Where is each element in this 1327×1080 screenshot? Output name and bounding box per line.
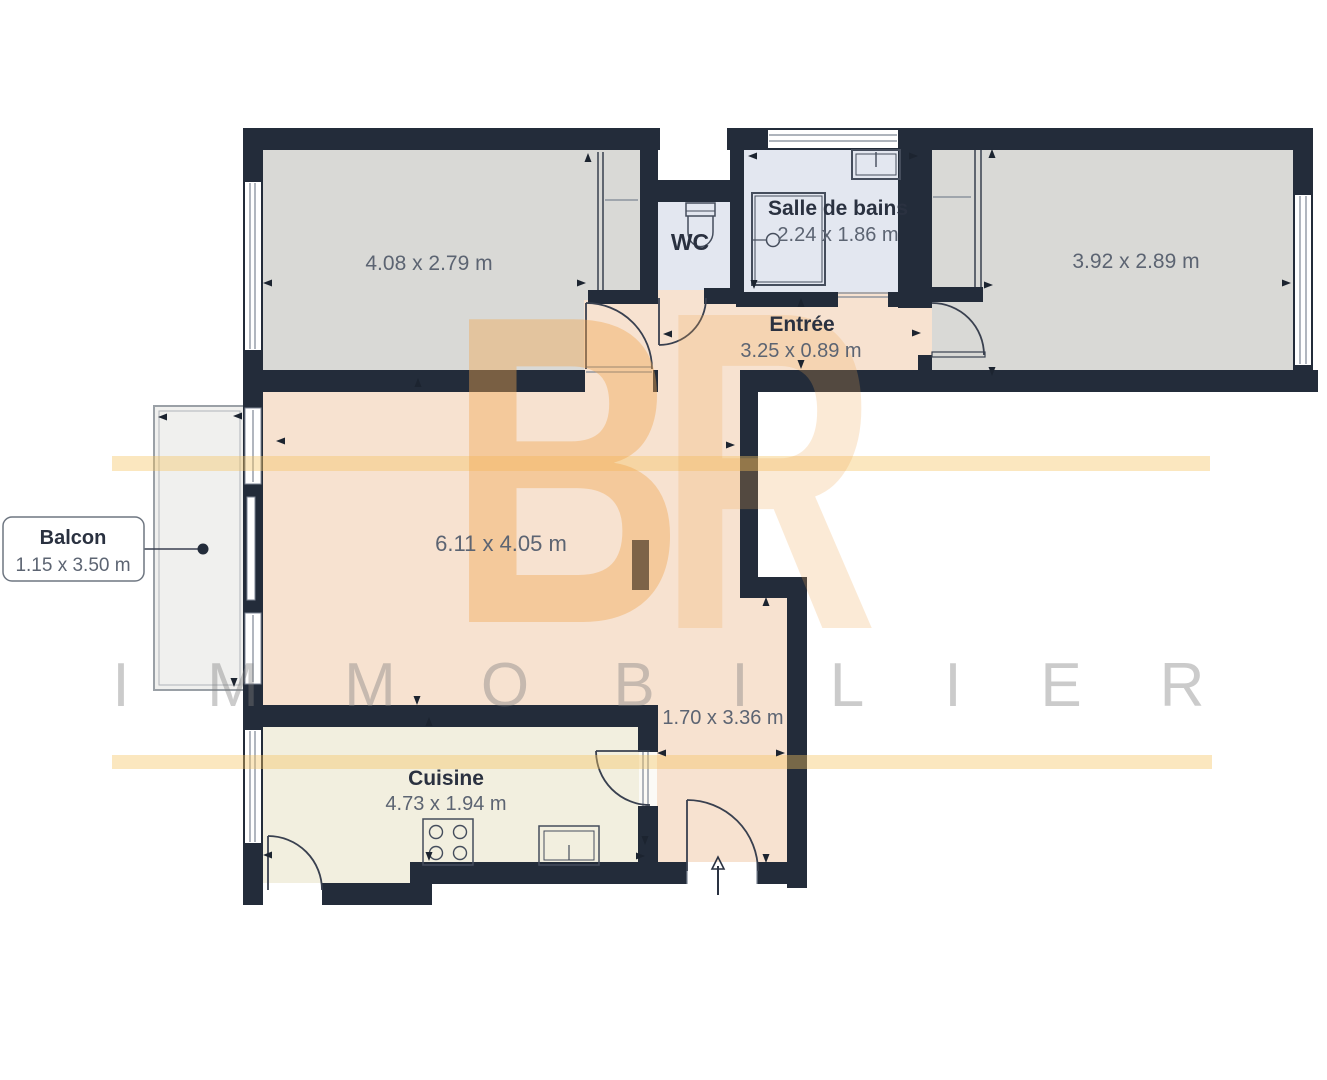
watermark-stripe-bottom — [112, 755, 1212, 769]
watermark-letter: M — [207, 651, 259, 720]
bedroom-left-dims: 4.08 x 2.79 m — [365, 252, 492, 275]
bedroom-right-dims: 3.92 x 2.89 m — [1072, 250, 1199, 273]
floor-plan-drawing: B R I M M O B I L I E R — [0, 0, 1327, 1080]
window-bedroom-right — [1295, 195, 1311, 365]
floor-plan-page: B R I M M O B I L I E R — [0, 0, 1327, 1080]
balcony-label: Balcon — [40, 527, 107, 549]
watermark-letter: O — [481, 651, 529, 720]
window-bedroom-left — [245, 182, 261, 350]
callout-dot — [198, 544, 209, 555]
kitchen-back-opening — [263, 883, 322, 905]
window-kitchen — [245, 730, 261, 843]
watermark-letter: M — [344, 651, 396, 720]
watermark-letter: L — [830, 651, 864, 720]
kitchen-dims: 4.73 x 1.94 m — [385, 793, 506, 815]
window-bathroom — [768, 130, 898, 148]
watermark-letter: I — [112, 651, 129, 720]
bathroom-label: Salle de bains — [768, 197, 908, 220]
watermark-letter: I — [944, 651, 961, 720]
entry-dims: 3.25 x 0.89 m — [740, 340, 861, 362]
balcony-dims: 1.15 x 3.50 m — [15, 555, 130, 576]
watermark-letter: R — [1160, 651, 1205, 720]
bathroom-dims: 2.24 x 1.86 m — [777, 224, 898, 246]
watermark-letter: B — [613, 651, 654, 720]
living-dims: 6.11 x 4.05 m — [435, 531, 567, 556]
watermark-logo-r: R — [658, 217, 878, 725]
watermark-logo-b: B — [447, 225, 685, 716]
wc-label: WC — [671, 229, 709, 255]
watermark-letter: E — [1040, 651, 1081, 720]
entry-label: Entrée — [769, 313, 834, 336]
kitchen-label: Cuisine — [408, 767, 484, 790]
hall-dims: 1.70 x 3.36 m — [662, 707, 783, 729]
